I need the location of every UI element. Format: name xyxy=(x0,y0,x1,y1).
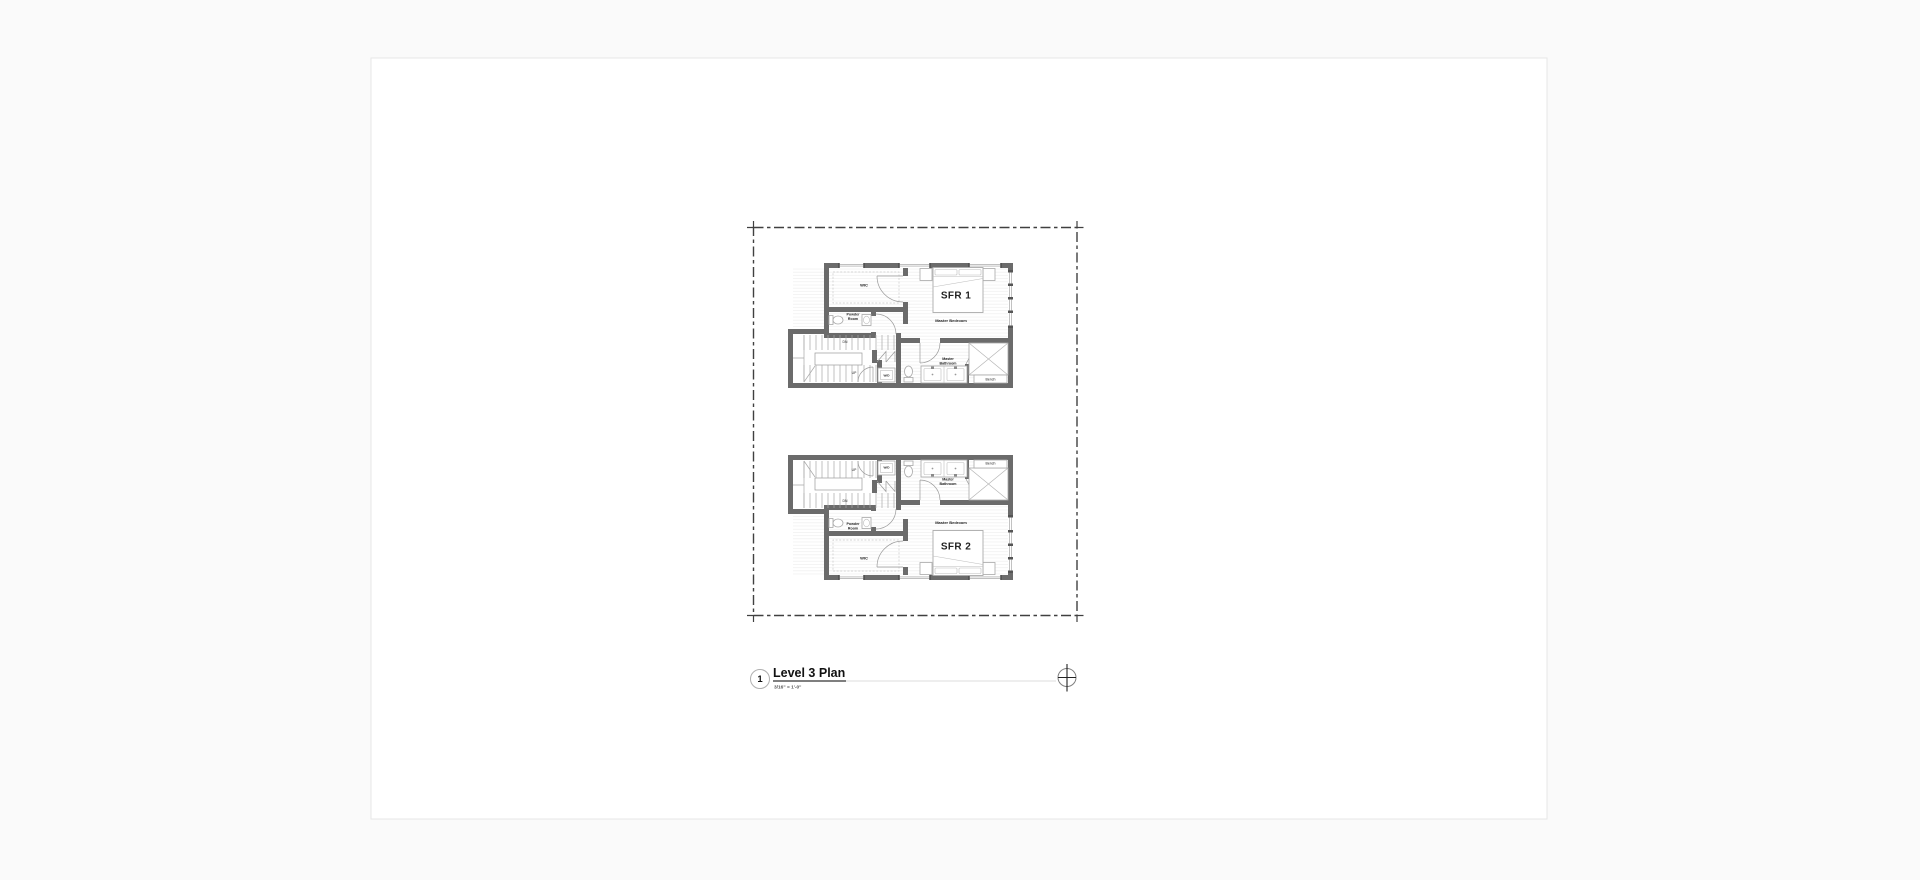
unit-sfr2-plan xyxy=(788,455,1013,580)
room-label-bath-2: Bathroom xyxy=(940,362,957,366)
view-scale: 3/16" = 1'-0" xyxy=(774,685,801,691)
fixture-label-wd: W/D xyxy=(883,374,890,378)
room-label-bedroom: Master Bedroom xyxy=(935,318,967,323)
room-label-bath-2: Bathroom xyxy=(940,482,957,486)
view-title: Level 3 Plan xyxy=(773,666,845,680)
view-number: 1 xyxy=(757,674,763,685)
stair-label-up: UP xyxy=(852,371,857,375)
unit-name-label: SFR 1 xyxy=(941,291,971,302)
room-label-powder-2: Room xyxy=(848,317,858,321)
unit-sfr1-plan xyxy=(788,263,1013,388)
fixture-label-bench: Bench xyxy=(986,378,996,382)
room-label-wic: WIC xyxy=(860,556,868,561)
stair-label-up: UP xyxy=(852,468,857,472)
room-label-powder-1: Powder xyxy=(847,313,861,317)
fixture-label-bench: Bench xyxy=(986,462,996,466)
room-label-bedroom: Master Bedroom xyxy=(935,520,967,525)
sheet xyxy=(371,58,1547,819)
unit-name-label: SFR 2 xyxy=(941,542,971,553)
room-label-bath-1: Master xyxy=(942,478,954,482)
drawing-canvas: SFR 1 Master Bedroom Master Bathroom WIC… xyxy=(0,0,1920,880)
room-label-bath-1: Master xyxy=(942,357,954,361)
fixture-label-wd: W/D xyxy=(883,466,890,470)
room-label-powder-2: Room xyxy=(848,527,858,531)
room-label-wic: WIC xyxy=(860,283,868,288)
room-label-powder-1: Powder xyxy=(847,522,861,526)
stair-label-dn: DN xyxy=(843,499,848,503)
stair-label-dn: DN xyxy=(843,340,848,344)
